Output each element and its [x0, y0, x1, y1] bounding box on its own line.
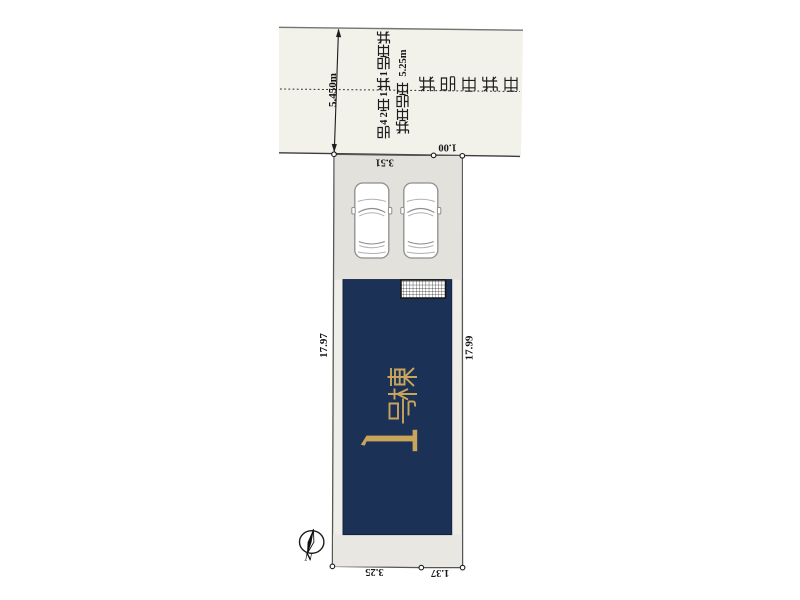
svg-text:17.99: 17.99: [464, 335, 476, 360]
svg-text:5.25m: 5.25m: [398, 49, 409, 76]
svg-text:3.25: 3.25: [365, 566, 383, 577]
svg-text:5.450m: 5.450m: [327, 73, 339, 107]
svg-text:1: 1: [379, 71, 390, 76]
svg-text:N: N: [304, 552, 314, 564]
svg-text:4: 4: [379, 119, 390, 125]
svg-text:2: 2: [379, 112, 390, 117]
svg-text:1.00: 1.00: [438, 142, 456, 153]
svg-text:3.51: 3.51: [375, 157, 393, 168]
svg-text:1.37: 1.37: [431, 567, 449, 578]
svg-text:1: 1: [379, 92, 390, 97]
svg-text:17.97: 17.97: [318, 333, 330, 358]
